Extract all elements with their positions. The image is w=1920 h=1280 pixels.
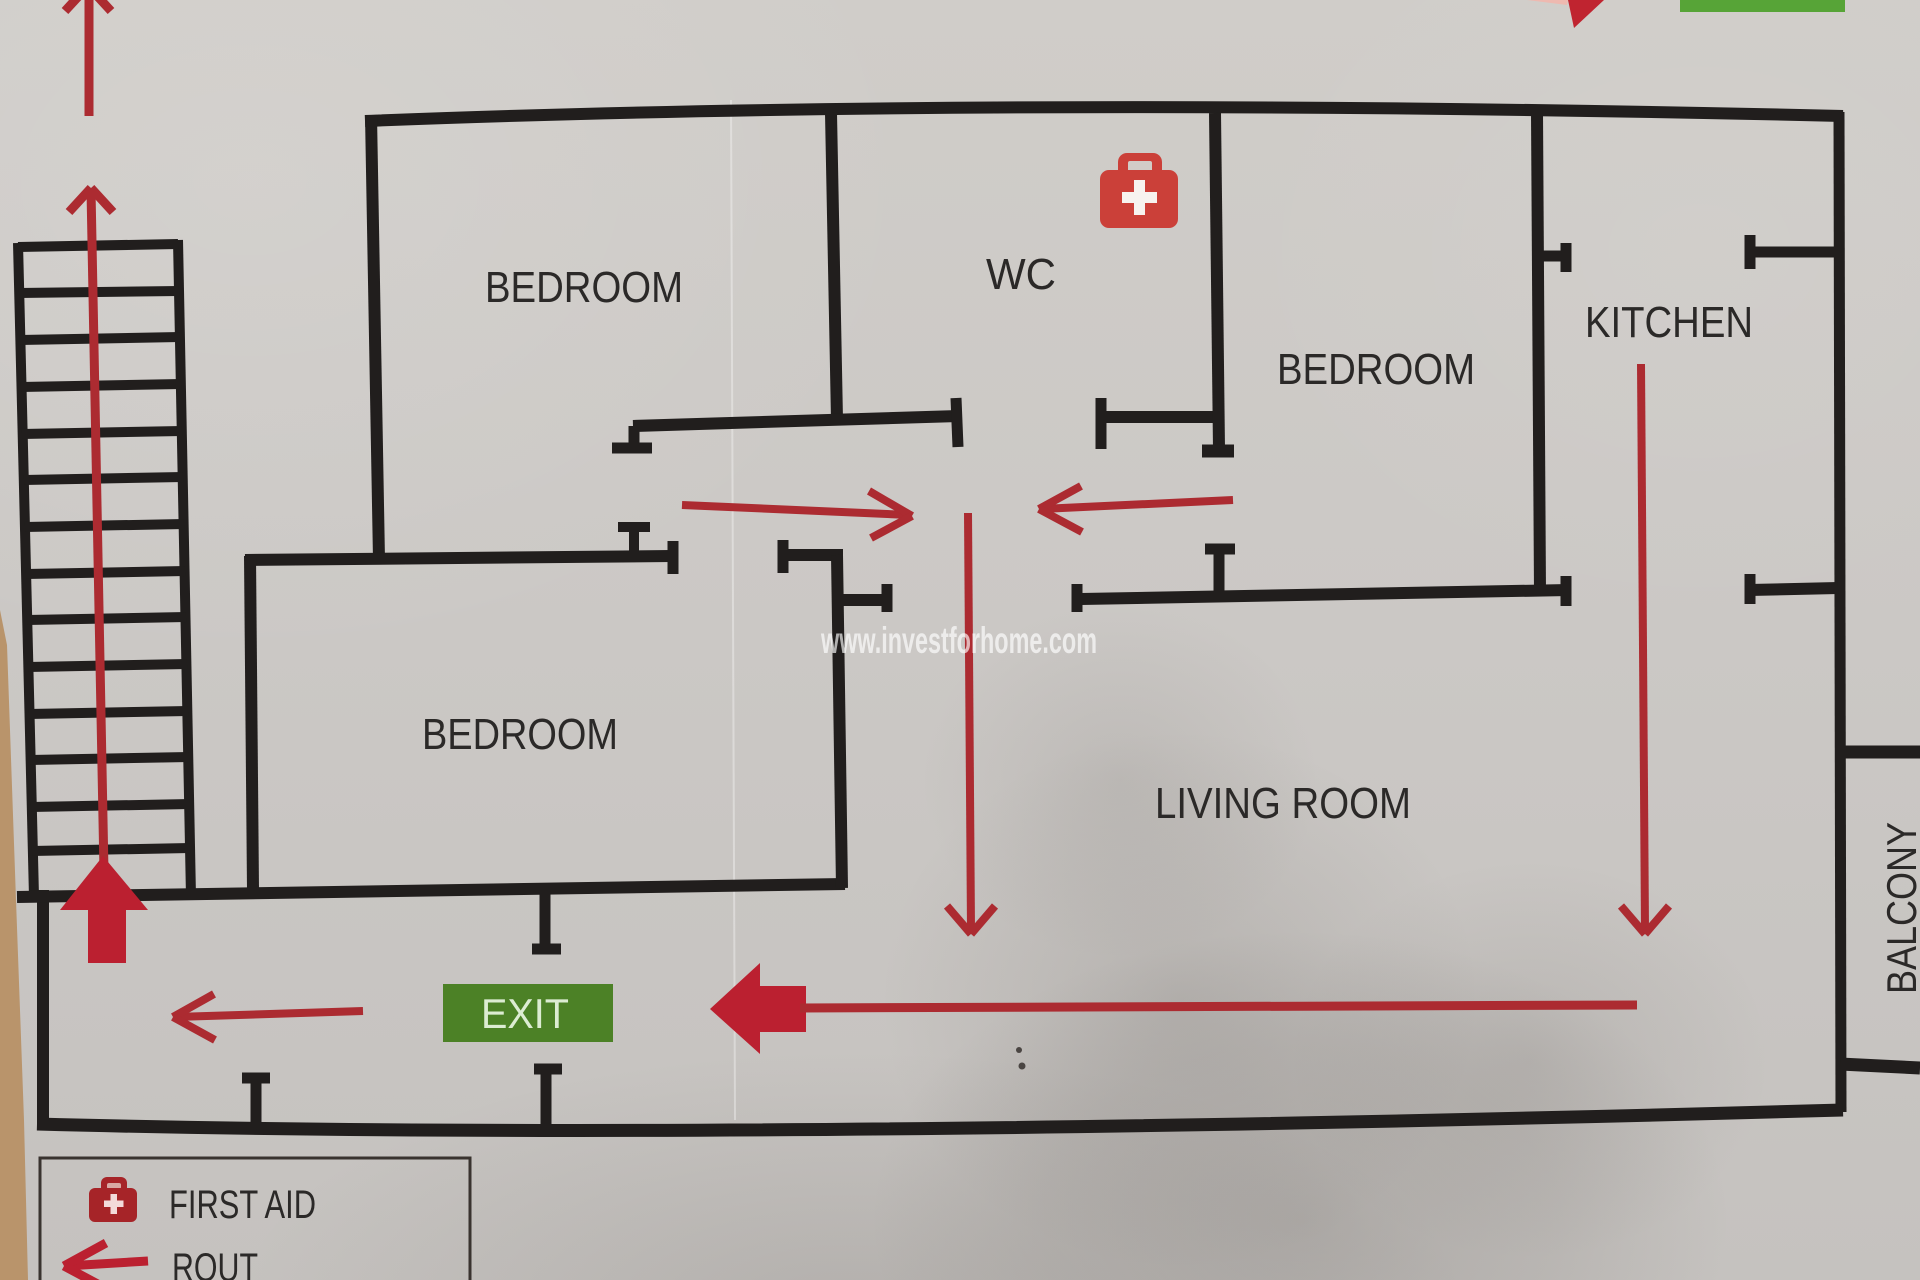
svg-text:BEDROOM: BEDROOM — [422, 710, 618, 759]
svg-text:BALCONY: BALCONY — [1878, 822, 1920, 994]
svg-text:EXIT: EXIT — [481, 990, 569, 1037]
svg-text:ROUT: ROUT — [172, 1246, 258, 1280]
svg-text:www.investforhome.com: www.investforhome.com — [820, 620, 1097, 661]
svg-text:BEDROOM: BEDROOM — [1277, 345, 1475, 394]
svg-text:BEDROOM: BEDROOM — [485, 263, 683, 312]
svg-text:KITCHEN: KITCHEN — [1585, 298, 1753, 347]
svg-text:WC: WC — [986, 250, 1056, 299]
svg-text:FIRST AID: FIRST AID — [169, 1183, 316, 1227]
svg-text:LIVING ROOM: LIVING ROOM — [1155, 779, 1411, 828]
